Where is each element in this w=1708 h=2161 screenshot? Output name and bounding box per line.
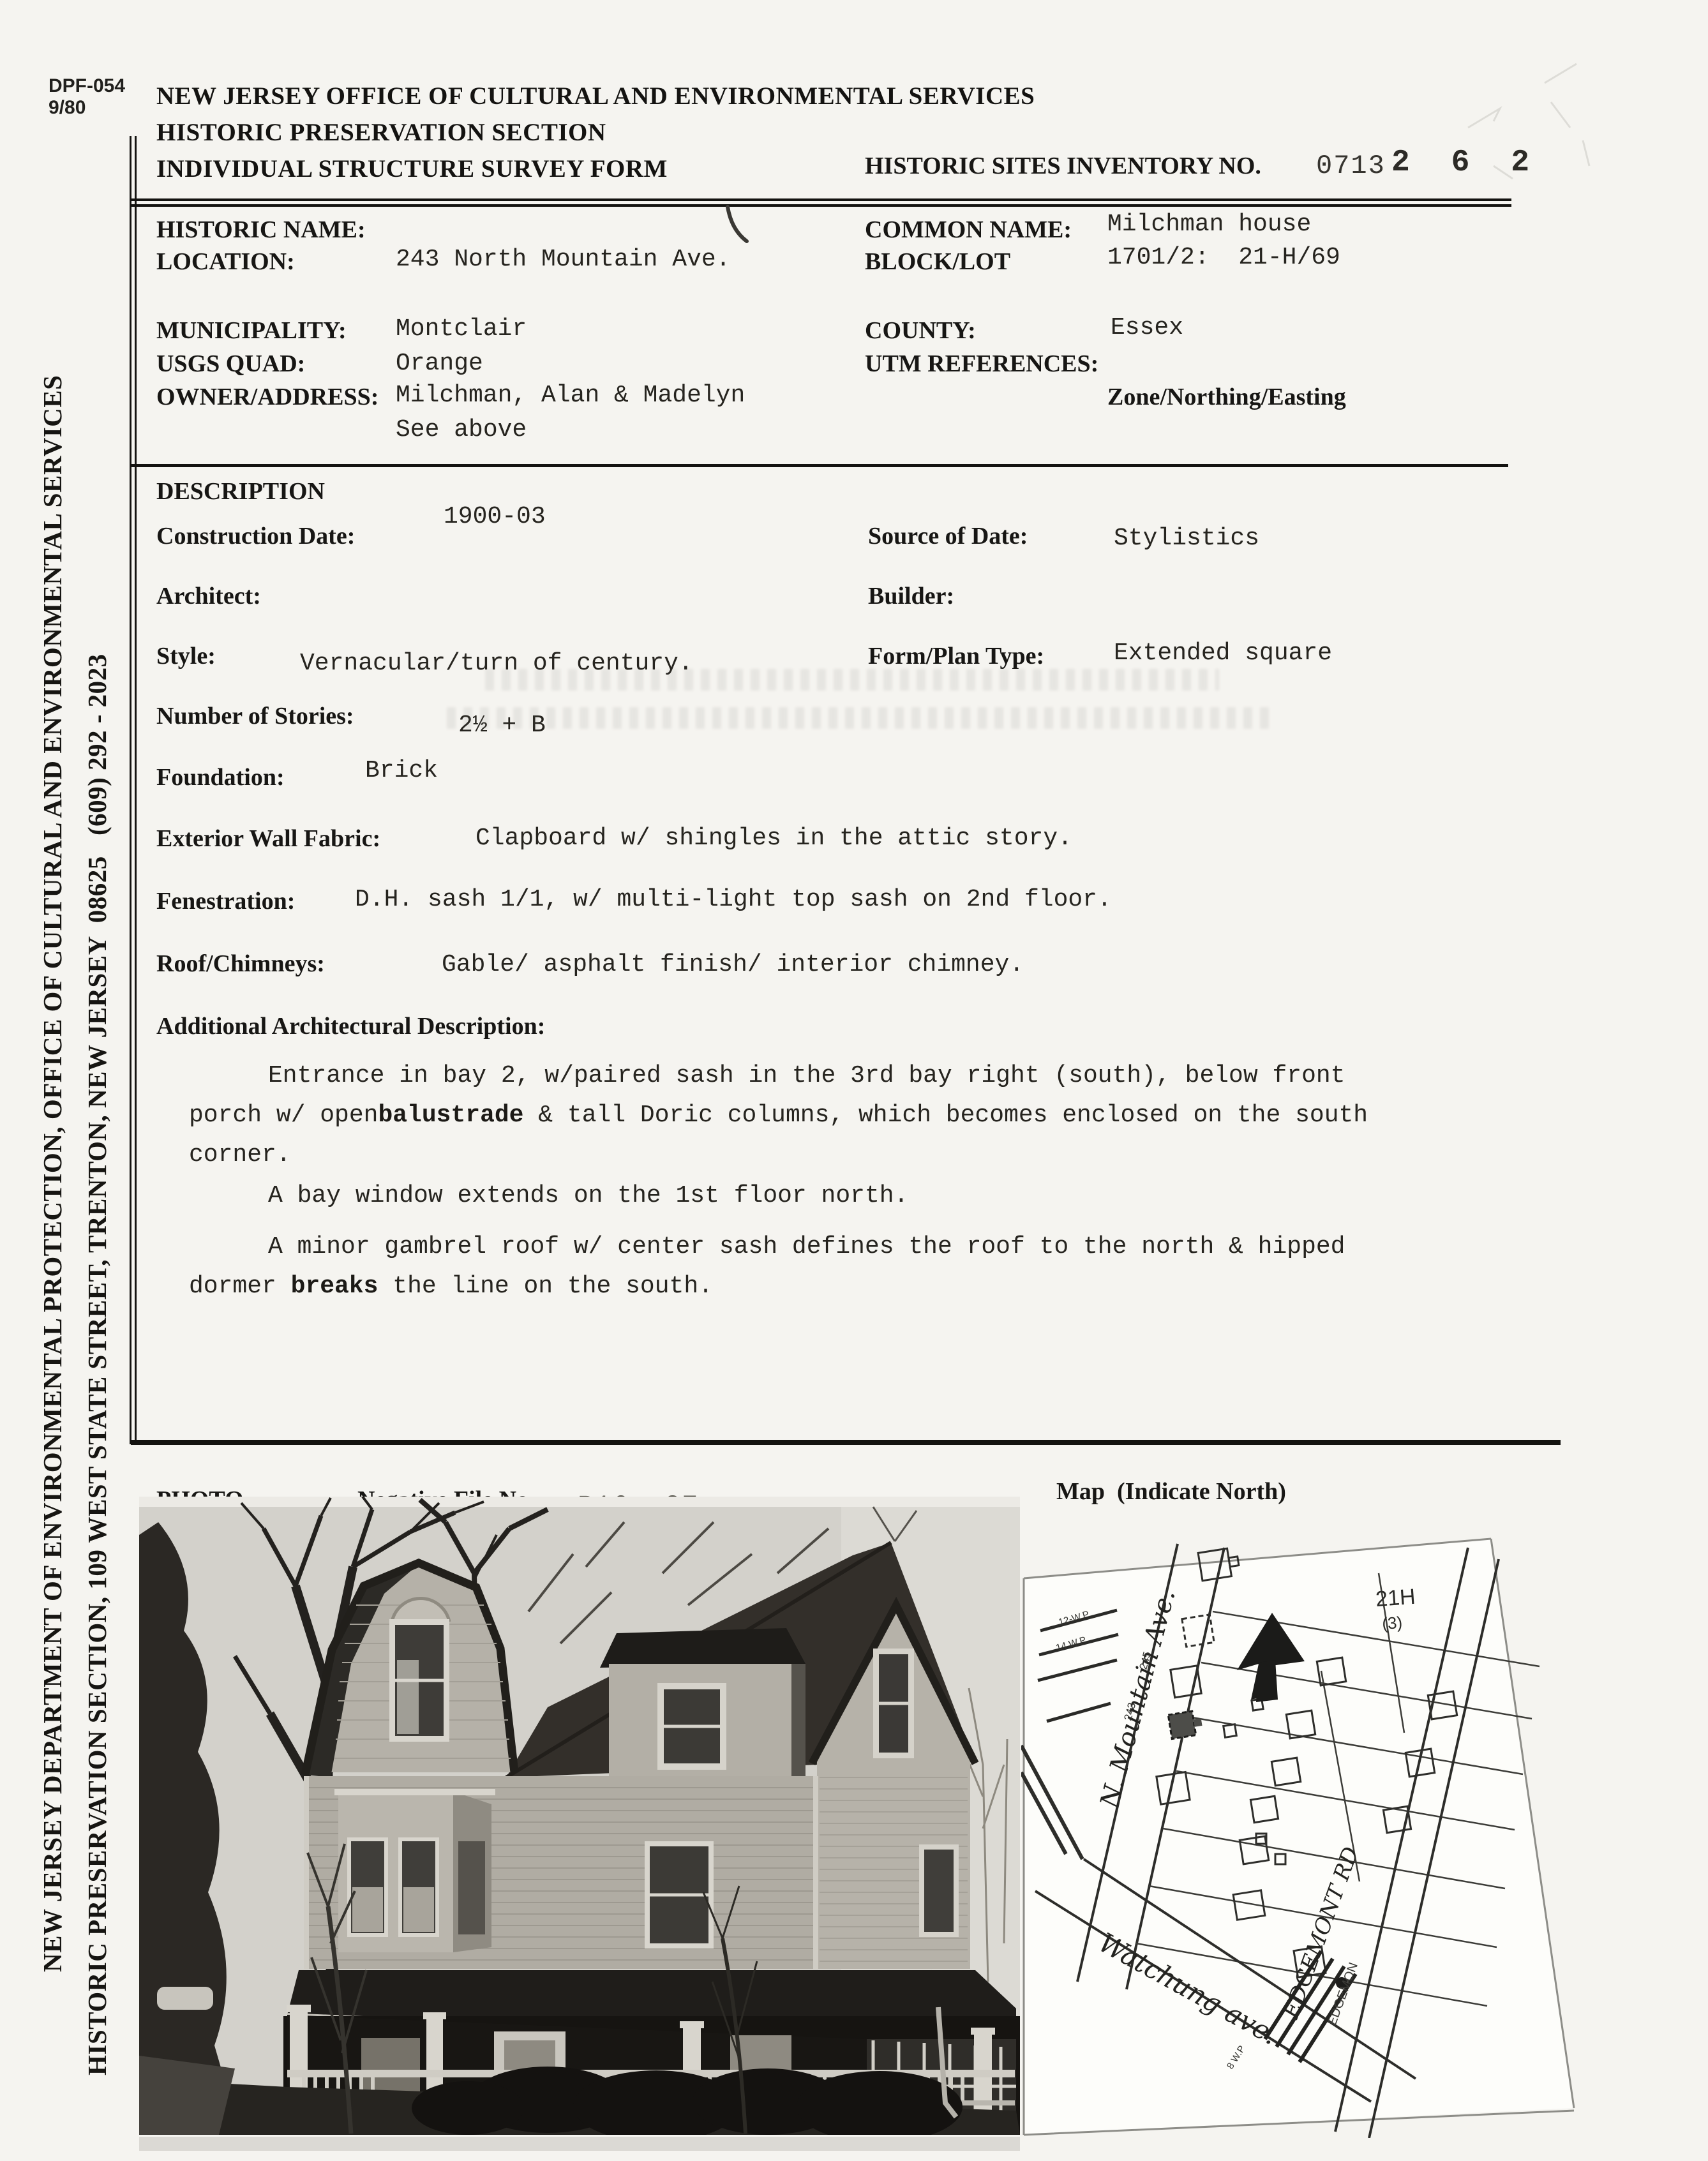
inventory-number-label: HISTORIC SITES INVENTORY NO. [865, 152, 1261, 180]
source-of-date-label: Source of Date: [868, 522, 1028, 550]
house-photo [139, 1497, 1020, 2135]
block-sublabel: (3) [1381, 1613, 1403, 1633]
additional-paragraph1-line1: Entrance in bay 2, w/paired sash in the … [268, 1062, 1345, 1089]
driveway [139, 2056, 235, 2135]
bleed-through-text [447, 707, 1277, 729]
number-of-stories-label: Number of Stories: [156, 702, 354, 730]
foundation-value: Brick [365, 757, 438, 784]
construction-date-value: 1900-03 [444, 503, 546, 530]
section-title: HISTORIC PRESERVATION SECTION [156, 118, 606, 147]
county-label: COUNTY: [865, 317, 976, 345]
form-revision-date: 9/80 [49, 97, 86, 119]
divider-top-double-2 [131, 204, 1511, 207]
architect-label: Architect: [156, 582, 261, 610]
location-map: N. Mountain Ave. Watchung ave. EDGEMONT … [1021, 1535, 1583, 2138]
divider-photo [131, 1440, 1561, 1445]
second-floor-window-south [924, 1850, 954, 1932]
form-number: DPF-054 [49, 75, 125, 97]
owner-address-value2: See above [396, 416, 527, 444]
owner-address-value: Milchman, Alan & Madelyn [396, 382, 745, 409]
additional-paragraph1-line2: porch w/ openbalustrade & tall Doric col… [189, 1102, 1368, 1129]
form-title: INDIVIDUAL STRUCTURE SURVEY FORM [156, 154, 668, 183]
bay-window [334, 1789, 495, 1952]
usgs-quad-value: Orange [396, 350, 483, 377]
exterior-wall-fabric-value: Clapboard w/ shingles in the attic story… [476, 825, 1072, 852]
block-label: 21H [1375, 1585, 1416, 1611]
paragraph-text: dormer [189, 1273, 291, 1300]
sidebar-department-line: NEW JERSEY DEPARTMENT OF ENVIRONMENTAL P… [37, 408, 68, 1972]
additional-paragraph2: A bay window extends on the 1st floor no… [268, 1182, 908, 1209]
pencil-scribble [1455, 45, 1621, 198]
pen-mark [721, 203, 753, 248]
municipality-label: MUNICIPALITY: [156, 317, 347, 345]
common-name-value: Milchman house [1107, 211, 1311, 238]
source-of-date-value: Stylistics [1114, 525, 1259, 552]
inventory-number-printed: 0713 [1316, 151, 1386, 181]
foundation-label: Foundation: [156, 763, 285, 791]
block-lot-value: 1701/2: 21-H/69 [1107, 244, 1340, 271]
paragraph-text: the line on the south. [378, 1273, 713, 1300]
roof-chimneys-value: Gable/ asphalt finish/ interior chimney. [442, 951, 1024, 978]
divider-description [131, 464, 1508, 467]
description-section-title: DESCRIPTION [156, 477, 325, 505]
additional-paragraph3-line2: dormer breaks the line on the south. [189, 1273, 713, 1300]
form-plan-type-value: Extended square [1114, 639, 1332, 667]
paragraph-text: & tall Doric columns, which becomes encl… [524, 1102, 1368, 1129]
scan-smudge [139, 2137, 1020, 2151]
overstruck-word-balustrade: balustrade [378, 1102, 523, 1129]
owner-address-label: OWNER/ADDRESS: [156, 383, 378, 411]
location-value: 243 North Mountain Ave. [396, 246, 731, 273]
additional-description-label: Additional Architectural Description: [156, 1012, 545, 1040]
location-label: LOCATION: [156, 248, 295, 276]
parked-car [157, 1987, 213, 2010]
block-lot-label: BLOCK/LOT [865, 248, 1010, 276]
fenestration-label: Fenestration: [156, 887, 295, 915]
hipped-dormer [600, 1628, 805, 1776]
bleed-through-text [485, 669, 1219, 691]
additional-paragraph3-line1: A minor gambrel roof w/ center sash defi… [268, 1233, 1345, 1260]
sidebar-address-line: HISTORIC PRESERVATION SECTION, 109 WEST … [82, 467, 112, 2075]
municipality-value: Montclair [396, 315, 527, 343]
divider-top-double-1 [131, 198, 1511, 201]
utm-references-label: UTM REFERENCES: [865, 350, 1098, 378]
form-plan-type-label: Form/Plan Type: [868, 642, 1044, 670]
builder-label: Builder: [868, 582, 954, 610]
left-border-line-1 [130, 136, 131, 1444]
paragraph-text: porch w/ open [189, 1102, 378, 1129]
style-label: Style: [156, 642, 216, 670]
map-label: Map (Indicate North) [1056, 1477, 1286, 1506]
agency-title: NEW JERSEY OFFICE OF CULTURAL AND ENVIRO… [156, 82, 1035, 110]
left-border-line-2 [135, 136, 137, 1444]
common-name-label: COMMON NAME: [865, 216, 1072, 244]
additional-paragraph1-line3: corner. [189, 1141, 291, 1169]
utm-zone-northing-easting: Zone/Northing/Easting [1107, 383, 1346, 411]
overstruck-word-breaks: breaks [291, 1273, 378, 1300]
historic-name-label: HISTORIC NAME: [156, 216, 366, 244]
fenestration-value: D.H. sash 1/1, w/ multi-light top sash o… [355, 886, 1112, 913]
shrubs [412, 2067, 963, 2135]
survey-form-page: DPF-054 9/80 NEW JERSEY OFFICE OF CULTUR… [0, 0, 1708, 2161]
construction-date-label: Construction Date: [156, 522, 355, 550]
exterior-wall-fabric-label: Exterior Wall Fabric: [156, 825, 380, 853]
county-value: Essex [1111, 314, 1183, 341]
roof-chimneys-label: Roof/Chimneys: [156, 950, 325, 978]
usgs-quad-label: USGS QUAD: [156, 350, 305, 378]
